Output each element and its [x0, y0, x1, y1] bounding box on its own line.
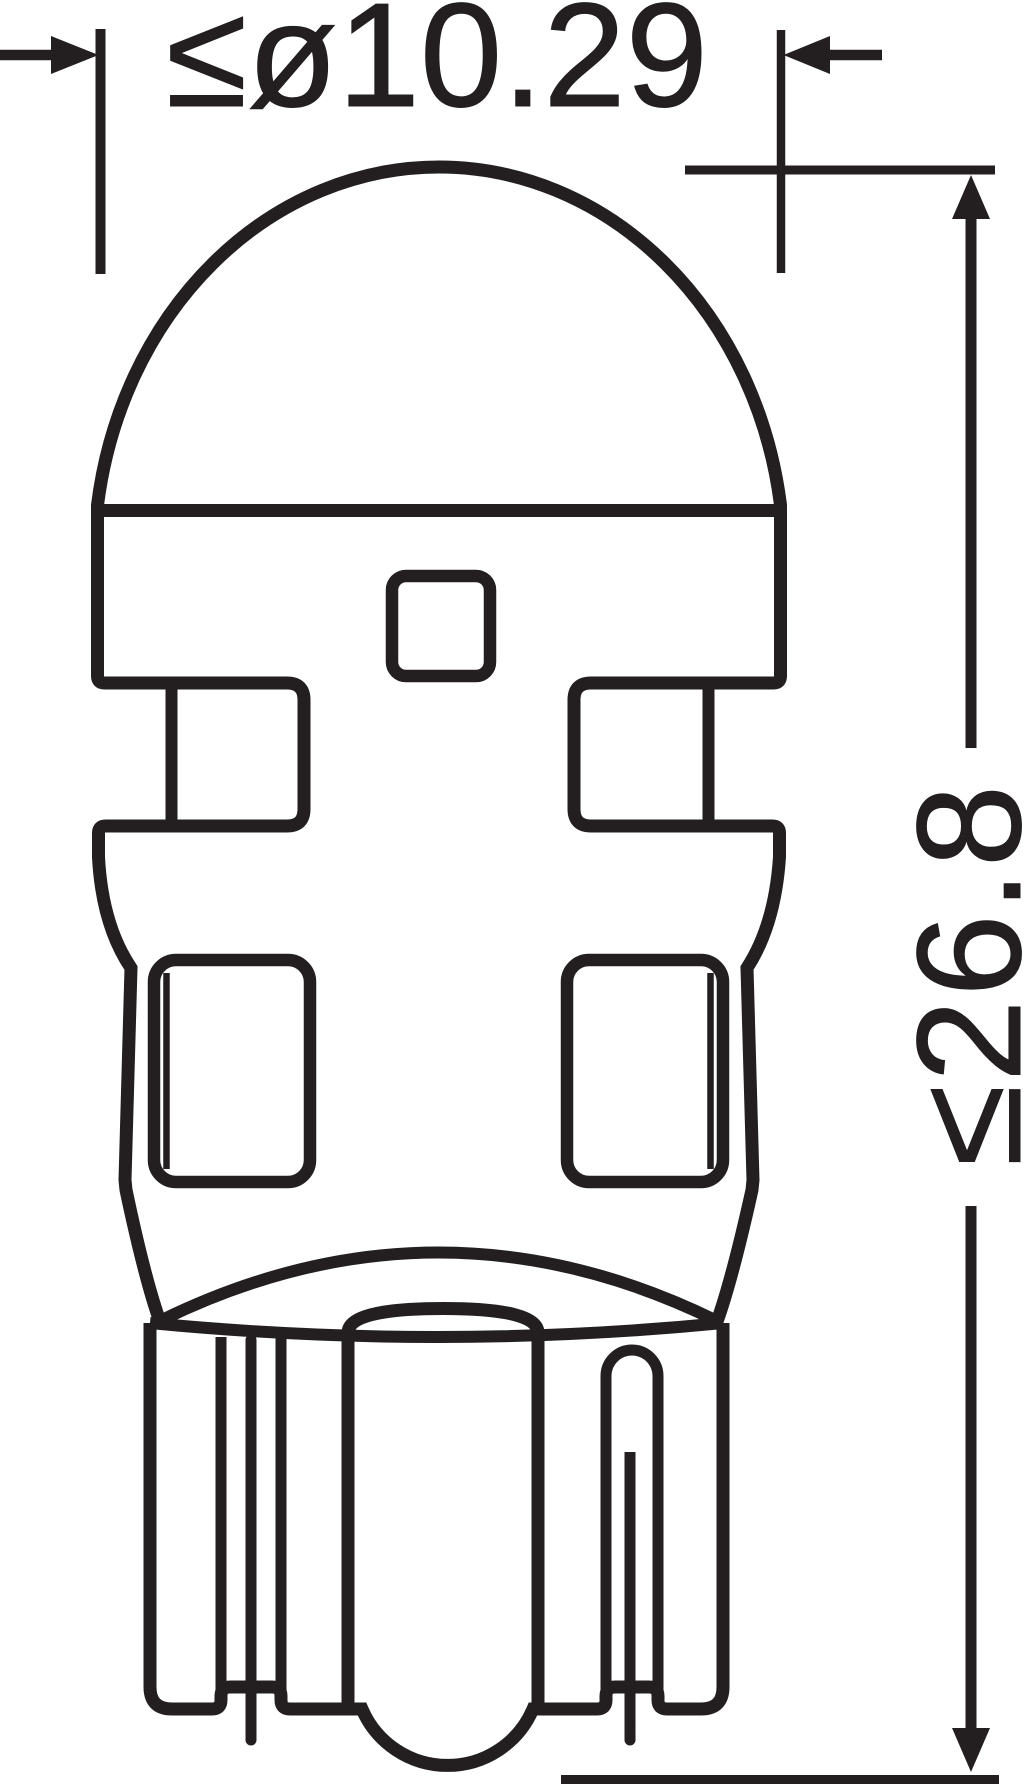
svg-text:≤ø10.29: ≤ø10.29	[166, 0, 708, 138]
svg-text:≤26.8: ≤26.8	[887, 782, 1024, 1166]
